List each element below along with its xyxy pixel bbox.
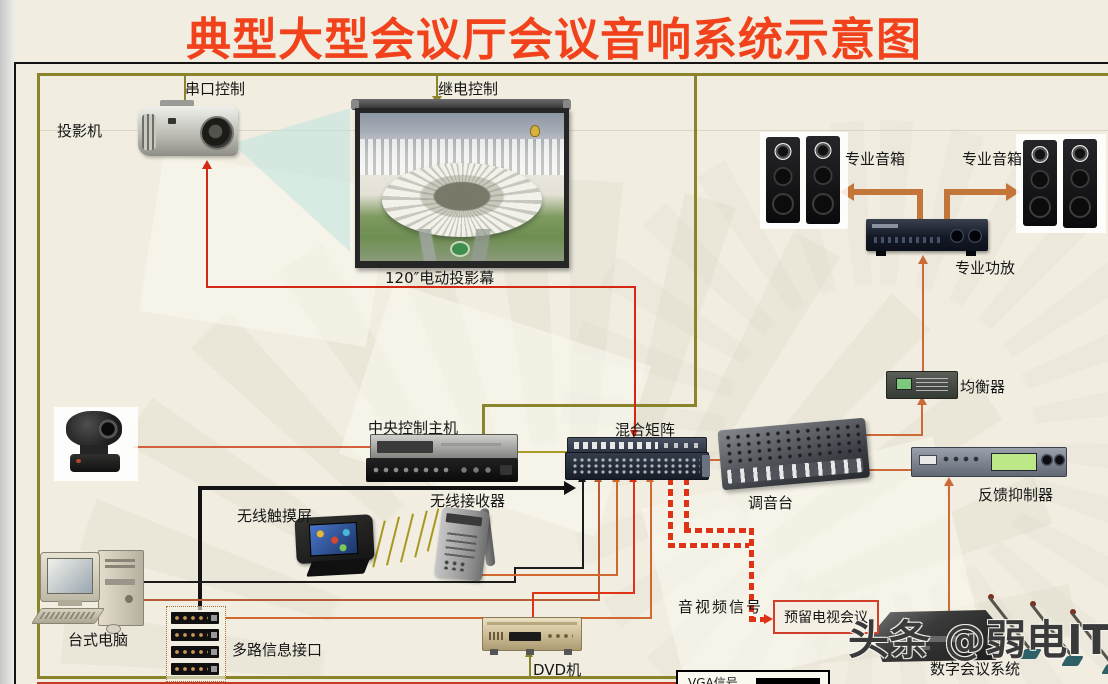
central-host-image: [366, 434, 518, 482]
striped-path-v1: [668, 478, 673, 545]
camera-line: [133, 446, 370, 448]
camera-image: [54, 407, 138, 481]
vga-signal-label: VGA信号: [688, 674, 738, 684]
matrix-black-arrow: [564, 481, 576, 495]
vga-legend-swatch: [756, 678, 820, 684]
equalizer-label: 均衡器: [960, 376, 1005, 397]
frame-left-line: [14, 62, 16, 684]
page-title: 典型大型会议厅会议音响系统示意图: [0, 3, 1108, 68]
matrix-label: 混合矩阵: [615, 419, 675, 440]
striped-path-h1: [668, 543, 754, 548]
screen-label: 120″电动投影幕: [385, 267, 494, 288]
multi-orange-v: [650, 481, 652, 619]
speaker-left-label: 专业音箱: [845, 148, 905, 169]
pc-orange-line: [132, 599, 599, 601]
dvd-label: DVD机: [533, 659, 581, 680]
wireless-receiver-image: [434, 504, 505, 585]
projector-label: 投影机: [57, 120, 102, 141]
bus-horizontal: [482, 404, 697, 407]
desktop-pc-label: 台式电脑: [68, 629, 128, 650]
serial-control-label: 串口控制: [185, 78, 245, 99]
watermark: 头条 @弱电IT圈: [848, 606, 1108, 666]
dvd-olive-line: [529, 656, 531, 678]
feedback-suppressor-label: 反馈抑制器: [978, 484, 1053, 505]
mixer-label: 调音台: [748, 492, 793, 513]
multi-interface-image: [166, 606, 226, 682]
wireless-waves: [374, 508, 444, 578]
spk-cable-right-h: [944, 189, 1008, 195]
recv-orange-v: [616, 481, 618, 576]
recv-black-v: [582, 481, 584, 569]
desktop-pc-image: [36, 548, 146, 628]
dvd-red-h: [532, 592, 635, 594]
multi-interface-label: 多路信息接口: [232, 639, 322, 660]
fbx-arrow-up: [944, 477, 954, 486]
amplifier-label: 专业功放: [955, 257, 1015, 278]
video-line-up: [206, 168, 208, 288]
multi-black-v: [198, 488, 202, 610]
speaker-pair-right-image: [1016, 134, 1106, 233]
video-line-v: [634, 288, 636, 436]
host-matrix-line: [516, 451, 567, 453]
central-host-label: 中央控制主机: [368, 417, 458, 438]
speaker-right-label: 专业音箱: [962, 148, 1022, 169]
control-bus-bottom: [37, 676, 697, 679]
projector-image: [138, 100, 240, 164]
multi-black-h: [198, 486, 566, 490]
striped-path-h2: [684, 528, 754, 533]
pc-orange-v: [598, 481, 600, 601]
speaker-pair-left-image: [760, 132, 848, 229]
vga-signal-box: VGA信号: [676, 670, 830, 684]
mixer-eq-line-v: [921, 404, 923, 436]
relay-control-label: 继电控制: [438, 78, 498, 99]
recv-black-h: [514, 567, 583, 569]
amplifier-image: [866, 219, 988, 257]
touchscreen-label: 无线触摸屏: [237, 505, 312, 526]
eq-amp-line: [922, 263, 924, 371]
av-signal-label: 音视频信号: [678, 596, 763, 617]
bus-host-drop: [482, 406, 485, 436]
spk-cable-left-h: [853, 189, 923, 195]
dvd-player-image: [482, 617, 580, 659]
multi-orange-line: [225, 617, 651, 619]
reserved-arrow-right: [764, 614, 773, 624]
equalizer-image: [886, 371, 956, 399]
receiver-label: 无线接收器: [430, 490, 505, 511]
feedback-suppressor-image: [911, 447, 1065, 477]
conf-fbx-line: [948, 485, 950, 617]
matrix-image: [565, 437, 707, 478]
striped-path-v2: [684, 478, 689, 530]
projection-screen-image: [351, 99, 571, 271]
slide-canvas: 典型大型会议厅会议音响系统示意图: [0, 0, 1108, 684]
dvd-red-v2: [633, 481, 635, 594]
bus-right-drop: [694, 76, 697, 406]
control-bus-top: [37, 73, 1108, 76]
mixer-image: [717, 418, 870, 495]
pc-black-line: [132, 581, 516, 583]
page-edge: [0, 0, 14, 684]
